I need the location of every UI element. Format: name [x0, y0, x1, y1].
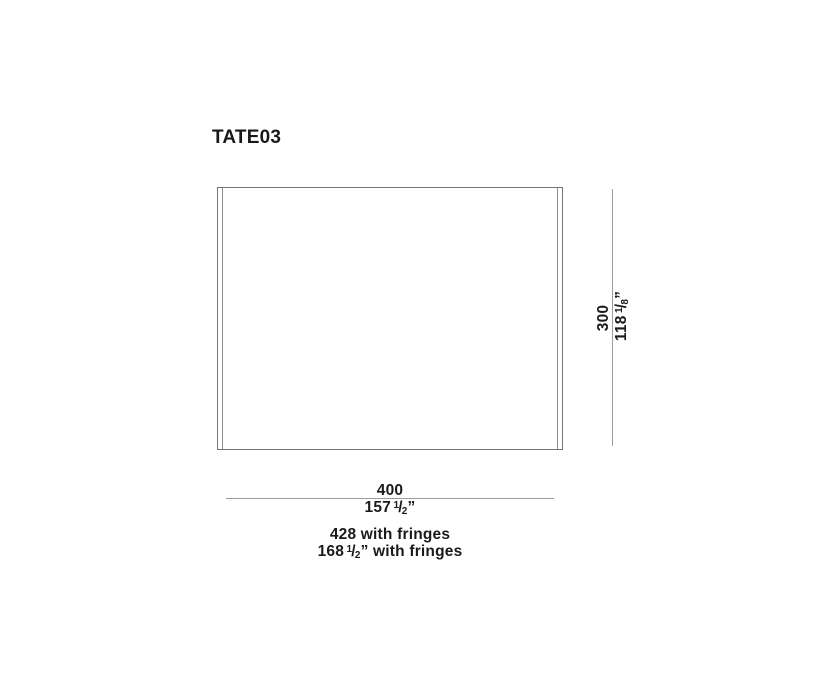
fringes-imperial-main: 168	[318, 543, 344, 560]
height-imperial-label: 1181/8”	[613, 271, 631, 361]
fringes-imperial-label: 1681/2” with fringes	[226, 544, 554, 561]
rug-outline	[217, 187, 563, 450]
height-imperial-sub: 8	[620, 299, 631, 305]
fringes-imperial-suffix: ” with fringes	[361, 543, 463, 560]
height-imperial-sup: 1	[614, 307, 625, 313]
width-metric-label: 400	[226, 483, 554, 498]
product-title: TATE03	[212, 127, 281, 149]
width-imperial-sup: 1	[393, 500, 399, 511]
width-imperial-suffix: ”	[408, 499, 416, 516]
width-imperial-sub: 2	[402, 506, 408, 517]
fringes-metric-label: 428 with fringes	[226, 527, 554, 542]
spec-sheet: TATE03 300 1181/8” 400 1571/2” 428 with …	[0, 0, 840, 679]
width-imperial-label: 1571/2”	[226, 500, 554, 517]
width-imperial-main: 157	[365, 499, 391, 516]
height-metric-value: 300	[595, 305, 612, 331]
height-imperial-suffix: ”	[613, 291, 630, 299]
right-fringe-line	[557, 188, 558, 449]
left-fringe-line	[222, 188, 223, 449]
fringes-imperial-sub: 2	[355, 550, 361, 561]
fringes-imperial-sup: 1	[347, 544, 353, 555]
height-metric-label: 300	[595, 278, 613, 358]
height-imperial-main: 118	[613, 315, 630, 341]
